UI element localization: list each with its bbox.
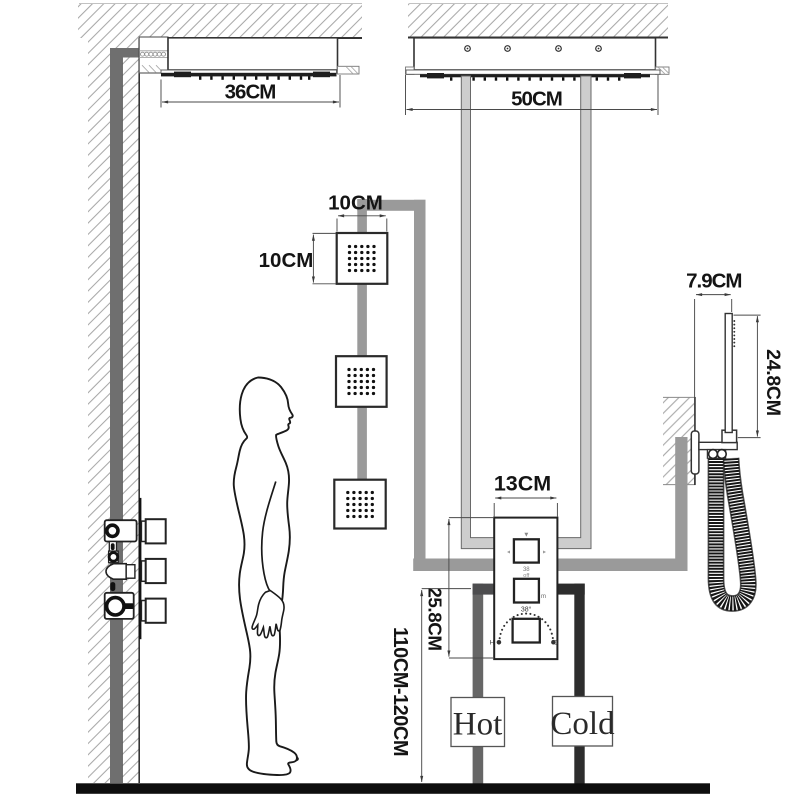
svg-text:10CM: 10CM (328, 192, 383, 215)
svg-text:25.8CM: 25.8CM (425, 587, 446, 650)
svg-text:50CM: 50CM (511, 88, 562, 111)
svg-text:▼: ▼ (523, 532, 529, 539)
svg-text:◂: ◂ (507, 550, 510, 556)
svg-text:7.9CM: 7.9CM (686, 270, 741, 293)
svg-text:38°: 38° (521, 606, 532, 614)
svg-text:Hot: Hot (453, 707, 503, 743)
svg-text:m: m (541, 594, 546, 600)
svg-text:24.8CM: 24.8CM (762, 349, 784, 415)
svg-text:110CM-120CM: 110CM-120CM (389, 627, 411, 756)
svg-text:Cold: Cold (550, 706, 615, 742)
svg-text:off: off (523, 573, 529, 579)
svg-text:▸: ▸ (543, 550, 546, 556)
svg-text:C: C (553, 640, 558, 647)
svg-text:36CM: 36CM (225, 81, 276, 104)
svg-text:H: H (490, 640, 495, 647)
svg-text:10CM: 10CM (259, 249, 314, 272)
svg-text:13CM: 13CM (494, 472, 551, 496)
